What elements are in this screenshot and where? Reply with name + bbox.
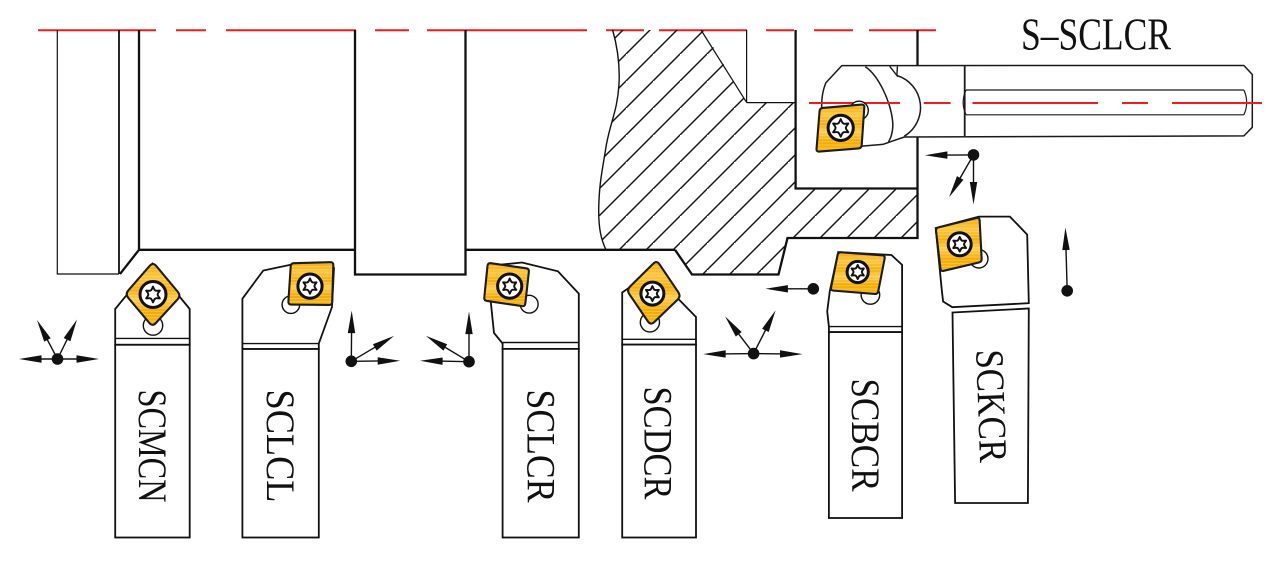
svg-text:S–SCLCR: S–SCLCR: [1021, 9, 1171, 60]
svg-text:SCDCR: SCDCR: [636, 387, 681, 500]
svg-text:SCBCR: SCBCR: [843, 379, 888, 492]
svg-text:SCLCR: SCLCR: [518, 390, 563, 503]
svg-text:SCLCL: SCLCL: [258, 390, 303, 503]
svg-text:SCMCN: SCMCN: [130, 390, 175, 503]
svg-text:SCKCR: SCKCR: [967, 349, 1016, 464]
